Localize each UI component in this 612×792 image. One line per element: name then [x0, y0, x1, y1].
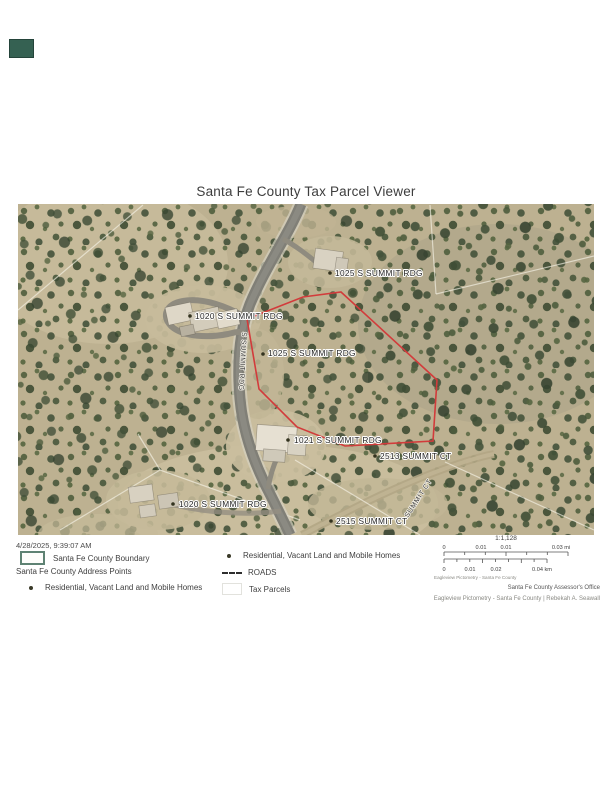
- legend-group-address-points: Santa Fe County Address Points: [16, 567, 132, 576]
- legend-label: Residential, Vacant Land and Mobile Home…: [45, 583, 202, 592]
- legend-item-county-boundary: Santa Fe County Boundary: [20, 551, 150, 565]
- parcel-label: 1025 S SUMMIT RDG: [335, 268, 423, 278]
- scale-km-label: 0.02: [491, 567, 502, 573]
- legend-item-roads: ROADS: [222, 568, 276, 577]
- assessor-office-credit: Santa Fe County Assessor's Office: [434, 585, 600, 591]
- scale-mi-label: 0.01: [476, 545, 487, 551]
- scale-km-label: 0.01: [465, 567, 476, 573]
- legend-label: ROADS: [248, 568, 276, 577]
- address-point-icon: [29, 586, 33, 590]
- scale-km-label: 0: [442, 567, 445, 573]
- legend-item-tax-parcels: Tax Parcels: [222, 583, 290, 595]
- page-title: Santa Fe County Tax Parcel Viewer: [0, 184, 612, 199]
- parcel-label: 2515 SUMMIT CT: [336, 516, 408, 526]
- aerial-map: 1025 S SUMMIT RDG 1020 S SUMMIT RDG 1025…: [18, 204, 594, 535]
- scale-bar: 1:1,128 0 0.01 0.01 0.03 mi 0 0.01 0.02 …: [432, 533, 596, 581]
- export-timestamp: 4/28/2025, 9:39:07 AM: [16, 541, 91, 550]
- print-page: Santa Fe County Tax Parcel Viewer: [0, 0, 612, 792]
- legend-label: Residential, Vacant Land and Mobile Home…: [243, 551, 400, 560]
- road-line-icon: [222, 572, 242, 574]
- scale-ticks: [444, 552, 568, 563]
- legend-label: Tax Parcels: [249, 585, 290, 594]
- county-boundary-symbol-fragment: [9, 39, 34, 58]
- parcel-label: 1025 S SUMMIT RDG: [268, 348, 356, 358]
- legend-item-residential-right: Residential, Vacant Land and Mobile Home…: [227, 551, 400, 560]
- scale-mi-label: 0.03 mi: [552, 545, 570, 551]
- address-point-icon: [227, 554, 231, 558]
- imagery-author-credit: Eagleview Pictometry - Santa Fe County |…: [434, 596, 600, 602]
- tax-parcel-swatch: [222, 583, 242, 595]
- county-boundary-swatch: [20, 551, 45, 565]
- scale-mi-label: 0.01: [501, 545, 512, 551]
- parcel-label: 2513 SUMMIT CT: [380, 451, 452, 461]
- legend-label: Santa Fe County Boundary: [53, 554, 150, 563]
- legend-item-residential-left: Residential, Vacant Land and Mobile Home…: [29, 583, 202, 592]
- parcel-label: 1020 S SUMMIT RDG: [179, 499, 267, 509]
- scale-km-label: 0.04 km: [532, 567, 552, 573]
- scale-ratio: 1:1,128: [495, 535, 517, 542]
- legend-group-label: Santa Fe County Address Points: [16, 567, 132, 576]
- parcel-label: 1020 S SUMMIT RDG: [195, 311, 283, 321]
- basemap-credit: Eagleview Pictometry - Santa Fe County: [434, 575, 517, 580]
- scale-mi-label: 0: [442, 545, 445, 551]
- attribution-block: Santa Fe County Assessor's Office Eaglev…: [434, 585, 600, 602]
- parcel-label: 1021 S SUMMIT RDG: [294, 435, 382, 445]
